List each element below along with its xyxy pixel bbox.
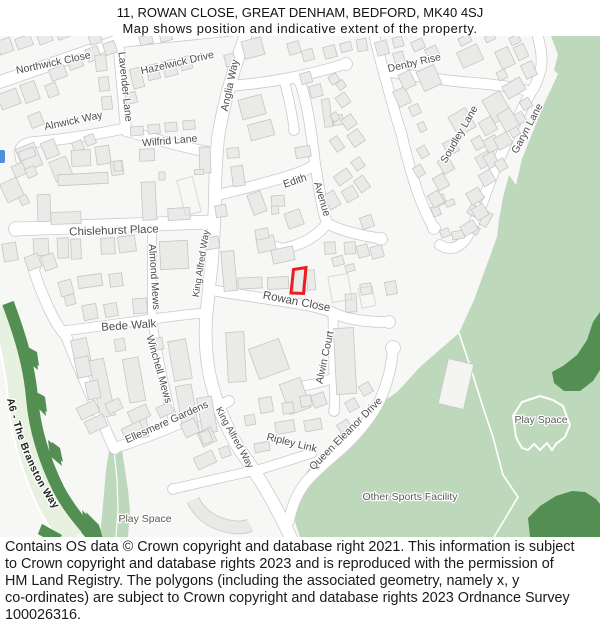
svg-text:Play Space: Play Space [514, 414, 567, 426]
svg-text:Play Space: Play Space [118, 513, 171, 525]
svg-text:Other Sports Facility: Other Sports Facility [362, 491, 458, 503]
